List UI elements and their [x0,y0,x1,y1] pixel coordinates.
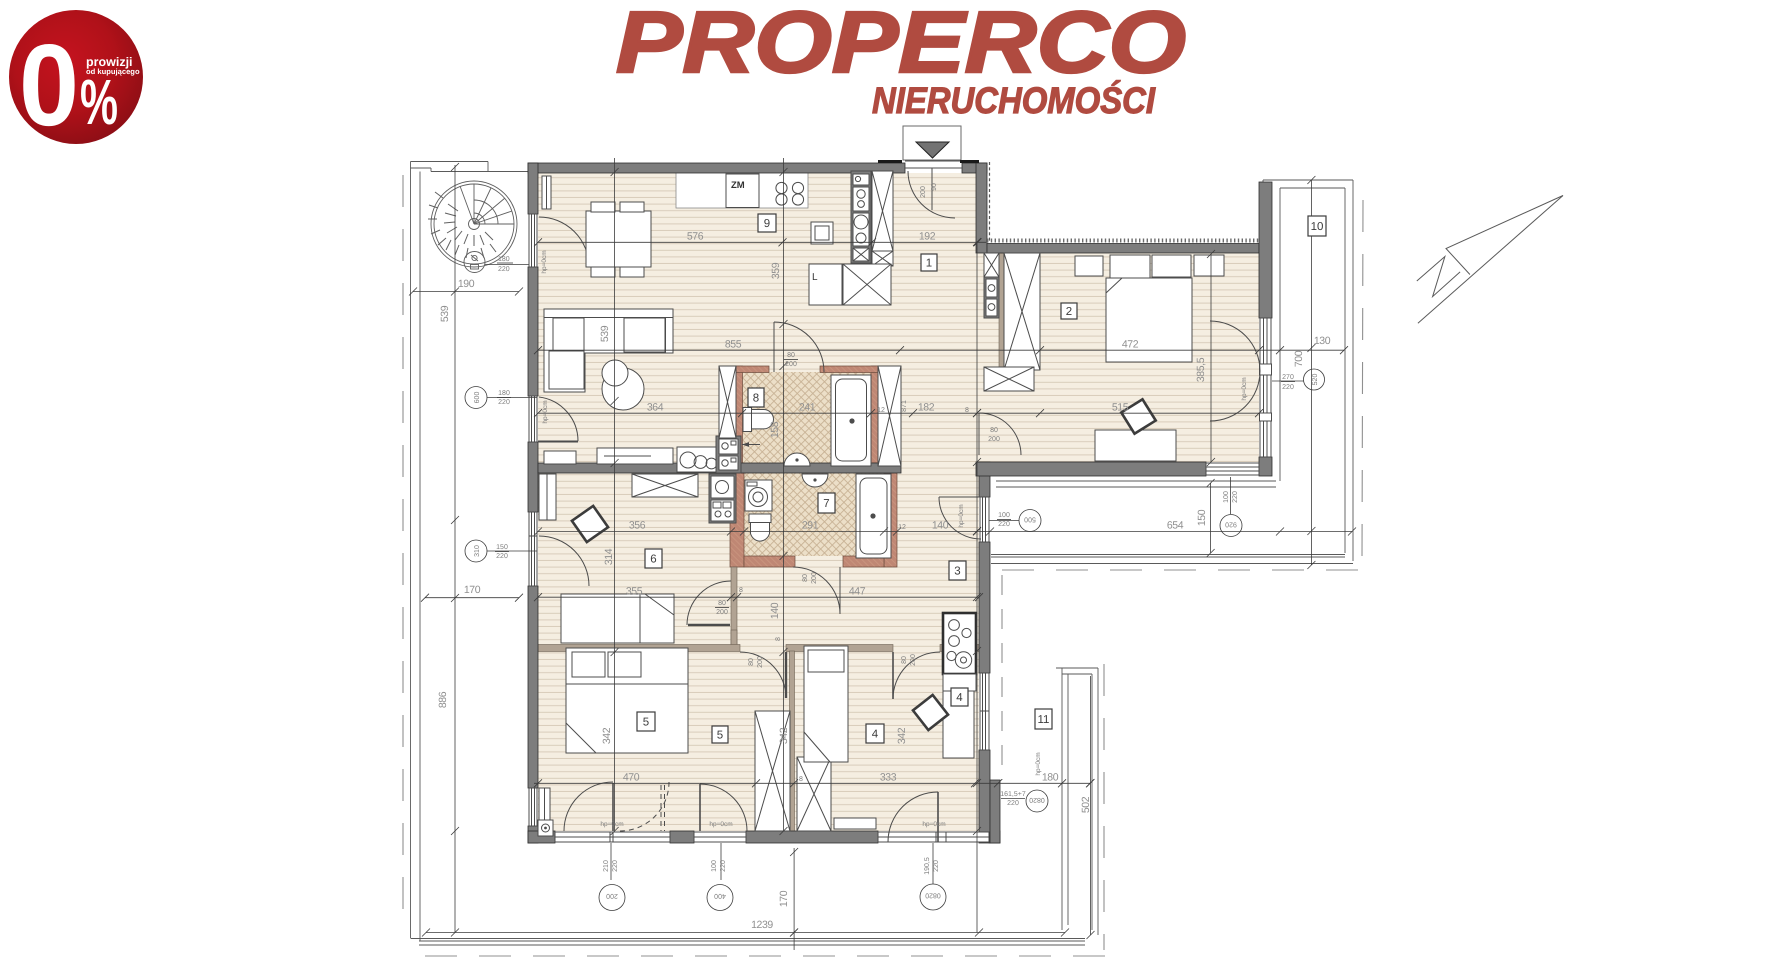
svg-text:886: 886 [437,691,449,708]
svg-text:1239: 1239 [751,919,773,931]
svg-text:hp=0cm: hp=0cm [922,821,945,828]
svg-text:700: 700 [1293,350,1305,367]
svg-text:310: 310 [474,545,481,557]
svg-text:161,5+7: 161,5+7 [1000,791,1026,798]
svg-text:180: 180 [498,256,510,263]
svg-text:180: 180 [498,390,510,397]
svg-text:12: 12 [898,524,906,531]
svg-text:190,5: 190,5 [924,857,931,875]
svg-text:220: 220 [998,521,1010,528]
svg-text:200: 200 [811,572,818,584]
svg-text:6: 6 [650,554,656,566]
svg-text:500: 500 [1024,516,1036,523]
svg-text:200: 200 [785,361,797,368]
svg-text:4: 4 [872,729,879,741]
svg-text:hp=0cm: hp=0cm [1241,377,1248,400]
svg-text:192: 192 [919,231,936,243]
svg-text:333: 333 [880,772,897,784]
svg-text:356: 356 [629,520,646,532]
svg-text:100: 100 [1223,491,1230,503]
svg-text:ZM: ZM [731,180,745,191]
svg-text:871: 871 [901,400,908,412]
svg-text:520: 520 [1312,374,1319,386]
svg-text:80: 80 [787,352,795,359]
svg-text:654: 654 [1167,520,1184,532]
svg-text:140: 140 [932,520,949,532]
svg-text:200: 200 [757,656,764,668]
svg-text:600: 600 [474,392,481,404]
svg-text:291: 291 [802,520,819,532]
svg-text:hp=0cm: hp=0cm [709,821,732,828]
svg-text:170: 170 [778,890,790,907]
svg-text:8: 8 [965,407,969,414]
svg-text:342: 342 [778,727,790,744]
svg-text:150: 150 [496,544,508,551]
svg-text:241: 241 [799,402,816,414]
svg-text:hp=0cm: hp=0cm [600,821,623,828]
svg-text:100: 100 [998,512,1010,519]
svg-text:3: 3 [954,566,960,578]
svg-text:12: 12 [877,407,885,414]
svg-text:80: 80 [718,600,726,607]
svg-text:100: 100 [711,860,718,872]
svg-text:8: 8 [739,587,743,594]
svg-text:10: 10 [1311,221,1324,233]
svg-text:200: 200 [716,609,728,616]
svg-text:140: 140 [769,602,781,619]
svg-text:200: 200 [606,892,618,899]
svg-text:359: 359 [770,262,782,279]
svg-text:210: 210 [603,860,610,872]
svg-text:4: 4 [956,692,963,704]
svg-text:2: 2 [1066,306,1072,318]
svg-text:182: 182 [918,402,935,414]
svg-text:0: 0 [19,20,79,150]
svg-text:539: 539 [599,325,611,342]
svg-text:576: 576 [687,231,704,243]
svg-text:180: 180 [1042,772,1059,784]
svg-text:80: 80 [802,574,809,582]
svg-text:470: 470 [623,772,640,784]
svg-text:80: 80 [990,427,998,434]
svg-text:855: 855 [725,339,742,351]
svg-text:447: 447 [849,586,866,598]
svg-text:342: 342 [896,727,908,744]
svg-text:220: 220 [1007,800,1019,807]
svg-text:7: 7 [823,498,829,510]
svg-text:190: 190 [458,278,475,290]
svg-text:539: 539 [439,305,451,322]
svg-text:355: 355 [626,586,643,598]
svg-text:170: 170 [464,584,481,596]
svg-text:9: 9 [764,218,770,230]
svg-text:5: 5 [717,730,723,742]
svg-text:1: 1 [926,258,932,270]
svg-text:220: 220 [498,399,510,406]
svg-text:400: 400 [714,892,726,899]
svg-text:80: 80 [748,658,755,666]
svg-text:150: 150 [1196,509,1208,526]
svg-text:od kupującego: od kupującego [86,67,140,76]
svg-text:200: 200 [988,436,1000,443]
svg-text:L: L [812,272,818,283]
svg-text:920: 920 [1225,521,1237,528]
svg-text:8: 8 [753,393,759,405]
svg-text:hp=0cm: hp=0cm [542,400,549,423]
svg-text:270: 270 [1282,374,1294,381]
svg-text:502: 502 [1080,796,1092,813]
svg-text:8: 8 [775,637,782,641]
svg-text:hp=0cm: hp=0cm [541,250,548,273]
svg-text:385,5: 385,5 [1195,357,1207,382]
svg-text:PROPERCO: PROPERCO [616,0,1186,91]
svg-text:364: 364 [647,402,664,414]
svg-text:0820: 0820 [1029,796,1045,803]
svg-text:0820: 0820 [925,892,941,899]
svg-text:158: 158 [769,421,781,438]
svg-text:342: 342 [601,727,613,744]
svg-text:80: 80 [901,656,908,664]
svg-text:5: 5 [643,717,649,729]
svg-text:472: 472 [1122,339,1139,351]
svg-text:220: 220 [612,860,619,872]
svg-text:220: 220 [1232,491,1239,503]
svg-text:200: 200 [910,654,917,666]
svg-text:NIERUCHOMOŚCI: NIERUCHOMOŚCI [872,80,1156,121]
svg-text:220: 220 [1282,384,1294,391]
svg-text:90: 90 [931,183,938,191]
svg-text:220: 220 [496,553,508,560]
svg-text:130: 130 [1314,335,1331,347]
svg-text:314: 314 [603,548,615,565]
svg-text:200: 200 [920,186,927,198]
svg-text:220: 220 [720,860,727,872]
svg-text:hp=0cm: hp=0cm [1035,752,1042,775]
svg-text:%: % [80,66,118,138]
svg-text:11: 11 [1038,714,1050,726]
svg-text:515: 515 [1112,402,1129,414]
svg-text:220: 220 [933,860,940,872]
svg-text:8: 8 [799,776,803,783]
svg-text:220: 220 [498,266,510,273]
svg-text:hp=0cm: hp=0cm [958,504,965,527]
